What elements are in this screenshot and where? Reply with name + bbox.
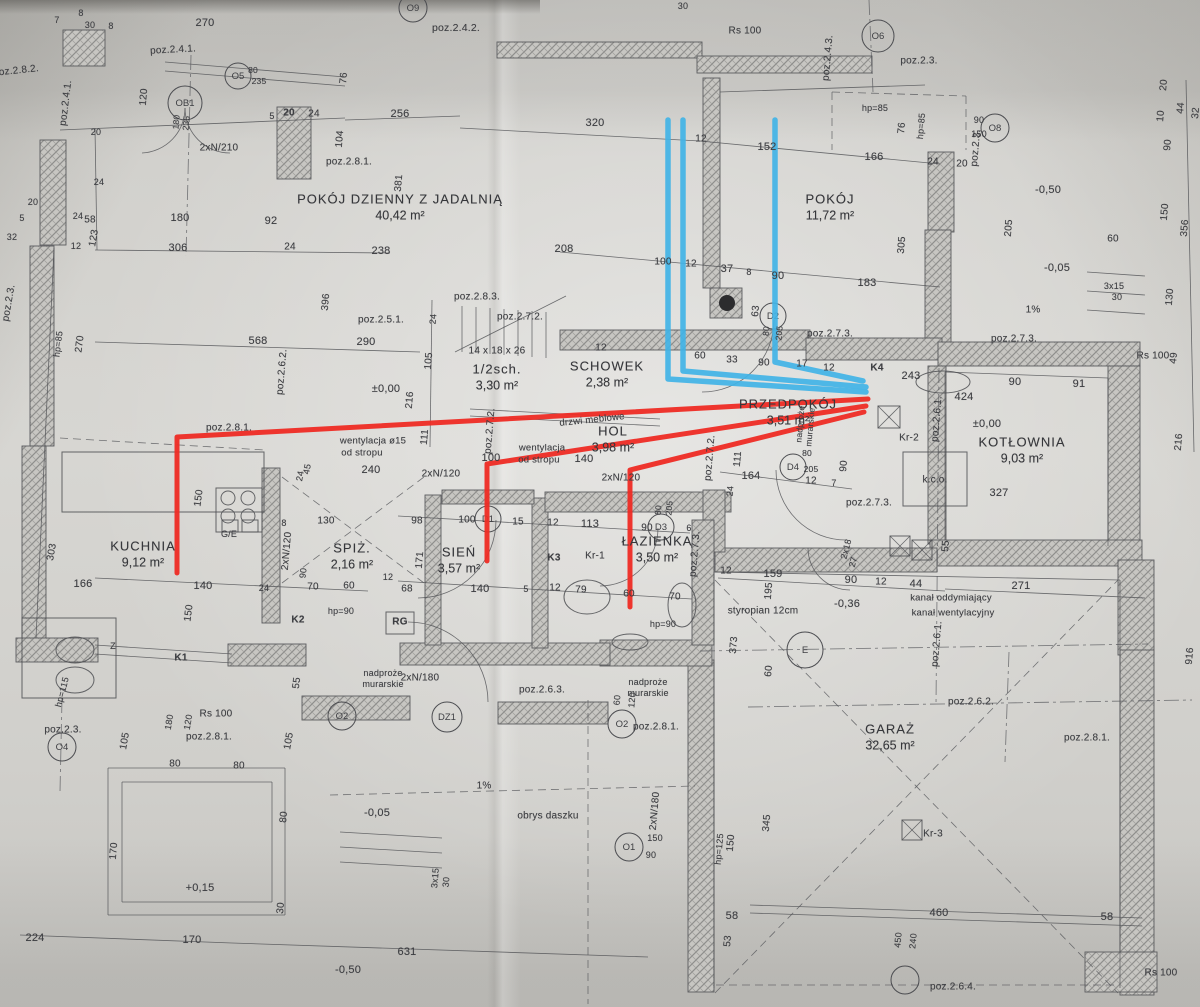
room-area: 2,16 m²	[331, 558, 373, 572]
dim-label: 8	[281, 518, 286, 528]
dim-label: 150	[182, 604, 195, 623]
dim-label: 305	[896, 236, 908, 254]
dim-label: 150	[725, 834, 737, 852]
dim-label: ±0,00	[372, 383, 400, 395]
dim-label: 90	[845, 574, 858, 586]
dim-label: 238	[372, 245, 391, 257]
dim-label: G/E	[221, 529, 237, 539]
dim-label: Kr-1	[585, 551, 605, 562]
dim-label: 180	[163, 713, 176, 730]
dim-label: 2xN/210	[200, 143, 239, 154]
room-area: 11,72 m²	[805, 209, 854, 223]
dim-label: 1%	[477, 781, 492, 792]
dim-label: 327	[990, 487, 1009, 499]
dim-label: 450	[892, 932, 903, 948]
room-area: 2,38 m²	[570, 376, 644, 390]
dim-label: 90	[1162, 139, 1174, 151]
poz-label: poz.2.6.2.	[275, 349, 290, 396]
dim-label: 208	[555, 243, 574, 255]
dim-label: 44	[1175, 102, 1187, 114]
dim-label: 15	[512, 517, 524, 528]
dim-label: 2xN/180	[648, 791, 662, 830]
dim-label: 58	[726, 910, 739, 922]
dim-label: 60	[612, 694, 623, 705]
dim-label: Rs 100	[729, 26, 762, 37]
dim-label: murarskie	[362, 679, 403, 689]
poz-label: poz.2.8.1.	[186, 732, 232, 743]
dim-label: 140	[575, 453, 594, 465]
room-name: GARAŻ	[865, 722, 915, 737]
dim-label: 150	[192, 489, 205, 508]
dim-label: 8	[78, 8, 83, 18]
dim-label: 140	[194, 580, 213, 592]
dim-label: 373	[728, 636, 740, 654]
dim-label: 224	[26, 932, 45, 944]
dim-label: 306	[169, 242, 188, 254]
dim-label: 12	[71, 241, 81, 251]
dim-label: 60	[1107, 234, 1119, 245]
dim-label: 12	[720, 566, 732, 577]
poz-label: poz.2.6.1.	[930, 621, 945, 668]
dim-label: 460	[930, 907, 949, 919]
room-area: 3,98 m²	[592, 441, 634, 455]
dim-label: 140	[471, 583, 490, 595]
dim-label: 3x15	[1104, 281, 1124, 291]
dim-label: 20	[956, 159, 968, 170]
room-name: SPIŻ.	[331, 541, 373, 556]
dim-label: 12	[823, 363, 835, 374]
dim-label: 320	[586, 117, 605, 129]
poz-label: poz.2.3.	[0, 284, 17, 323]
labels-layer: 78308270poz.2.4.1.poz.2.8.2.poz.2.4.1.12…	[0, 0, 1200, 1007]
dim-label: 33	[726, 355, 738, 366]
dim-label: 76	[896, 122, 908, 134]
dim-label: 63	[750, 305, 762, 317]
dim-label: Rs 100	[200, 709, 233, 720]
room-label: ŁAZIENKA3,50 m²	[622, 534, 693, 565]
room-name: ŁAZIENKA	[622, 534, 693, 549]
room-area: 3,50 m²	[622, 551, 693, 565]
dim-label: 240	[907, 933, 918, 949]
dim-label: 130	[317, 516, 334, 527]
room-area: 3,51 m²	[739, 414, 837, 428]
room-area: 40,42 m²	[297, 209, 503, 223]
dim-label: 27	[847, 556, 859, 569]
dim-label: 164	[742, 470, 761, 482]
dim-label: 105	[282, 732, 296, 751]
dim-label: K1	[174, 653, 187, 664]
poz-label: poz.2.8.1.	[633, 722, 679, 733]
room-name: KOTŁOWNIA	[978, 435, 1065, 450]
dim-label: 216	[404, 391, 416, 409]
dim-label: wentylacja ø15	[340, 436, 406, 447]
dim-label: 3x15	[429, 867, 441, 888]
dim-label: 30	[441, 876, 452, 887]
dim-label: 152	[758, 141, 777, 153]
poz-label: poz.2.8.3.	[454, 292, 500, 303]
dim-label: 7	[54, 15, 59, 25]
dim-label: 205	[663, 500, 674, 516]
dim-label: 20	[283, 108, 295, 119]
dim-label: 80	[761, 326, 772, 337]
dim-label: 270	[73, 335, 86, 354]
poz-label: poz.2.8.2.	[0, 63, 39, 79]
room-label: KOTŁOWNIA9,03 m²	[978, 435, 1065, 466]
dim-label: 24	[73, 211, 83, 221]
room-name: POKÓJ DZIENNY Z JADALNIĄ	[297, 192, 503, 207]
dim-label: Kr-2	[899, 433, 919, 444]
room-area: 32,65 m²	[865, 739, 915, 753]
room-label: GARAŻ32,65 m²	[865, 722, 915, 753]
dim-label: 120	[626, 692, 637, 708]
dim-label: Rs 100	[1137, 351, 1170, 362]
dim-label: nadproże	[628, 677, 667, 687]
dim-label: 30	[678, 1, 688, 11]
dim-label: 111	[732, 451, 744, 468]
dim-label: 159	[764, 568, 783, 580]
room-label: HOL3,98 m²	[592, 424, 634, 455]
poz-label: poz.2.4.1.	[150, 43, 196, 56]
poz-label: poz.2.6.2.	[948, 697, 994, 708]
room-area: 3,30 m²	[473, 379, 522, 393]
dim-label: +0,15	[186, 882, 215, 894]
dim-label: 916	[1184, 647, 1196, 665]
dim-label: 80	[248, 65, 258, 75]
dim-label: hp=115	[53, 676, 71, 708]
dim-label: 12	[595, 343, 607, 354]
dim-label: 1%	[1026, 305, 1041, 316]
room-name: SCHOWEK	[570, 359, 644, 374]
dim-label: 92	[265, 215, 278, 227]
dim-label: 17	[796, 359, 808, 370]
dim-label: 123	[87, 229, 101, 248]
dim-label: 90	[758, 358, 770, 369]
dim-label: 356	[1179, 219, 1191, 237]
dim-label: 2xN/120	[422, 469, 461, 480]
dim-label: kanał wentylacyjny	[912, 608, 995, 619]
dim-label: 55	[291, 677, 303, 690]
dim-label: 80	[278, 811, 290, 823]
dim-label: 120	[182, 713, 195, 730]
dim-label: 113	[581, 518, 599, 530]
dim-label: 7	[831, 478, 836, 488]
room-area: 9,12 m²	[110, 556, 176, 570]
dim-label: 171	[414, 551, 426, 569]
dim-label: 100	[482, 452, 501, 464]
poz-label: poz.2.8.1.	[206, 423, 252, 434]
dim-label: 183	[858, 277, 877, 289]
dim-label: 80	[802, 448, 812, 458]
room-label: SPIŻ.2,16 m²	[331, 541, 373, 572]
dim-label: od stropu	[341, 448, 382, 459]
dim-label: obrys daszku	[517, 811, 578, 822]
dim-label: 53	[722, 935, 734, 947]
dim-label: 170	[183, 934, 202, 946]
room-label: PRZEDPOKÓJ3,51 m²	[739, 397, 837, 428]
poz-label: poz.2.6.4.	[930, 982, 976, 993]
room-name: PRZEDPOKÓJ	[739, 397, 837, 412]
dim-label: 12	[685, 259, 697, 270]
dim-label: K4	[870, 363, 883, 374]
dim-label: hp=85	[915, 112, 927, 139]
dim-label: -0,36	[834, 598, 860, 610]
dim-label: 396	[320, 293, 332, 311]
room-label: POKÓJ11,72 m²	[805, 192, 854, 223]
poz-label: poz.2.4.3.	[821, 35, 836, 82]
dim-label: hp=85	[51, 330, 64, 357]
dim-label: 111	[419, 429, 431, 446]
dim-label: nadproże	[363, 668, 402, 678]
dim-label: 120	[138, 88, 150, 106]
dim-label: 290	[357, 336, 376, 348]
dim-label: 14 x 18 x 26	[469, 346, 526, 357]
dim-label: 105	[118, 732, 132, 751]
room-area: 9,03 m²	[978, 452, 1065, 466]
dim-label: 5	[19, 213, 24, 223]
dim-label: 24	[927, 157, 939, 168]
dim-label: K2	[291, 615, 304, 626]
dim-label: 2xN/120	[280, 531, 294, 570]
dim-label: 24	[94, 177, 104, 187]
dim-label: 205	[804, 464, 819, 474]
dim-label: 150	[1159, 203, 1171, 221]
dim-label: 60	[343, 581, 355, 592]
room-name: KUCHNIA	[110, 539, 176, 554]
dim-label: 100	[458, 515, 475, 526]
dim-label: 32	[7, 232, 17, 242]
dim-label: 79	[575, 585, 587, 596]
dim-label: 49	[1168, 352, 1180, 364]
dim-label: 424	[955, 391, 974, 403]
room-name: SIEŃ	[438, 545, 480, 560]
dim-label: 12	[547, 518, 559, 529]
room-name: 1/2sch.	[473, 362, 522, 377]
room-label: KUCHNIA9,12 m²	[110, 539, 176, 570]
dim-label: 24	[308, 109, 320, 120]
dim-label: 20	[91, 127, 101, 137]
room-label: POKÓJ DZIENNY Z JADALNIĄ40,42 m²	[297, 192, 503, 223]
dim-label: 216	[1173, 433, 1185, 451]
dim-label: 30	[1112, 292, 1122, 302]
dim-label: 58	[84, 215, 96, 226]
poz-label: poz.2.6.3.	[519, 685, 565, 696]
dim-label: 24	[259, 583, 269, 593]
dim-label: hp=90	[650, 619, 676, 629]
dim-label: kanał oddymiający	[910, 593, 992, 604]
dim-label: 80	[653, 505, 664, 516]
dim-label: 235	[180, 115, 191, 131]
poz-label: poz.2.7.3.	[991, 334, 1037, 345]
poz-label: poz.2.8.1.	[326, 157, 372, 168]
dim-label: 256	[391, 108, 410, 120]
floorplan-photo: OB1O5O9O6O8D2D3D4D1O2DZ1O2O4O1E 78308270…	[0, 0, 1200, 1007]
dim-label: 104	[334, 130, 346, 148]
dim-label: 195	[763, 582, 775, 600]
dim-label: 37	[721, 263, 734, 275]
dim-label: 90	[974, 115, 984, 125]
dim-label: 58	[1101, 911, 1114, 923]
dim-label: 12	[805, 476, 817, 487]
dim-label: 24	[284, 242, 296, 253]
dim-label: -0,50	[1035, 184, 1061, 196]
dim-label: 5	[523, 584, 528, 594]
dim-label: Z	[110, 641, 116, 651]
dim-label: 100	[654, 257, 671, 268]
poz-label: poz.2.8.1.	[1064, 733, 1110, 744]
dim-label: 98	[411, 516, 423, 527]
dim-label: 205	[773, 325, 784, 341]
dim-label: 76	[338, 72, 350, 84]
dim-label: hp=90	[328, 606, 354, 616]
poz-label: poz.2.3.	[44, 725, 81, 736]
dim-label: 90	[838, 460, 850, 472]
dim-label: 8	[108, 21, 113, 31]
dim-label: 68	[401, 584, 413, 595]
dim-label: 12	[875, 577, 887, 588]
dim-label: Rs 100	[1145, 968, 1178, 979]
poz-label: poz.2.4.1.	[58, 80, 75, 127]
dim-label: 30	[275, 902, 287, 914]
dim-label: 12	[549, 583, 561, 594]
dim-label: styropian 12cm	[728, 606, 799, 617]
dim-label: 303	[45, 543, 59, 562]
dim-label: 90	[646, 850, 656, 860]
dim-label: 166	[74, 578, 93, 590]
dim-label: K3	[547, 553, 560, 564]
poz-label: poz.2.7.3.	[846, 498, 892, 509]
dim-label: 91	[1073, 378, 1086, 390]
dim-label: od stropu	[518, 455, 559, 466]
dim-label: 150	[647, 833, 663, 843]
room-area: 3,57 m²	[438, 562, 480, 576]
poz-label: poz.2.7.2.	[497, 312, 543, 323]
room-label: SIEŃ3,57 m²	[438, 545, 480, 576]
dim-label: 60	[763, 665, 775, 677]
dim-label: 24	[725, 485, 736, 496]
dim-label: 44	[910, 578, 923, 590]
poz-label: poz.2.6.1.	[930, 396, 945, 443]
dim-label: 150	[971, 129, 987, 139]
dim-label: 270	[196, 17, 215, 29]
dim-label: 170	[108, 842, 120, 860]
dim-label: 20	[1158, 79, 1170, 91]
dim-label: 12	[695, 134, 707, 145]
dim-label: 345	[761, 814, 773, 832]
dim-label: 70	[669, 592, 681, 603]
dim-label: 90	[1009, 376, 1022, 388]
dim-label: 130	[1164, 288, 1176, 306]
dim-label: 240	[362, 464, 381, 476]
dim-label: 381	[393, 174, 405, 192]
dim-label: 166	[865, 151, 884, 163]
poz-label: poz.2.7.2.	[703, 435, 718, 482]
room-label: 1/2sch.3,30 m²	[473, 362, 522, 393]
dim-label: -0,05	[1044, 262, 1070, 274]
dim-label: 180	[171, 212, 190, 224]
dim-label: hp=85	[862, 103, 888, 113]
dim-label: 80	[233, 761, 245, 772]
dim-label: 90	[297, 567, 308, 579]
dim-label: k.c.o.	[922, 475, 947, 486]
dim-label: 2xN/180	[401, 673, 440, 684]
dim-label: 631	[398, 946, 417, 958]
dim-label: 30	[85, 20, 95, 30]
dim-label: 55	[940, 540, 952, 552]
room-name: HOL	[592, 424, 634, 439]
dim-label: 235	[252, 76, 267, 86]
dim-label: 10	[1155, 110, 1167, 122]
dim-label: wentylacja	[519, 443, 565, 454]
poz-label: poz.2.7.3.	[807, 329, 853, 340]
dim-label: 271	[1012, 580, 1031, 592]
dim-label: 60	[623, 589, 635, 600]
dim-label: ±0,00	[973, 418, 1001, 430]
poz-label: poz.2.4.2.	[432, 22, 480, 34]
dim-label: 105	[423, 352, 435, 370]
dim-label: RG	[392, 617, 407, 628]
room-label: SCHOWEK2,38 m²	[570, 359, 644, 390]
poz-label: poz.2.3.	[900, 56, 937, 67]
dim-label: 90	[772, 270, 785, 282]
dim-label: -0,05	[364, 807, 390, 819]
dim-label: 20	[28, 197, 38, 207]
dim-label: 60	[694, 351, 706, 362]
poz-label: poz.2.7.2.	[483, 408, 498, 455]
dim-label: 568	[249, 335, 268, 347]
dim-label: 90	[641, 523, 653, 534]
dim-label: 5	[269, 111, 274, 121]
dim-label: -0,50	[335, 964, 361, 976]
dim-label: 2xN/120	[602, 473, 641, 484]
dim-label: 12	[383, 572, 393, 582]
dim-label: Kr-3	[923, 829, 943, 840]
poz-label: poz.2.5.1.	[358, 315, 404, 326]
dim-label: 243	[902, 370, 921, 382]
dim-label: 24	[294, 470, 306, 482]
dim-label: 32	[1190, 107, 1200, 119]
dim-label: hp=125	[713, 833, 726, 865]
room-name: POKÓJ	[805, 192, 854, 207]
dim-label: 70	[307, 582, 319, 593]
dim-label: 205	[1003, 219, 1015, 237]
dim-label: 8	[746, 267, 751, 277]
dim-label: 80	[169, 759, 181, 770]
dim-label: 24	[428, 313, 439, 324]
